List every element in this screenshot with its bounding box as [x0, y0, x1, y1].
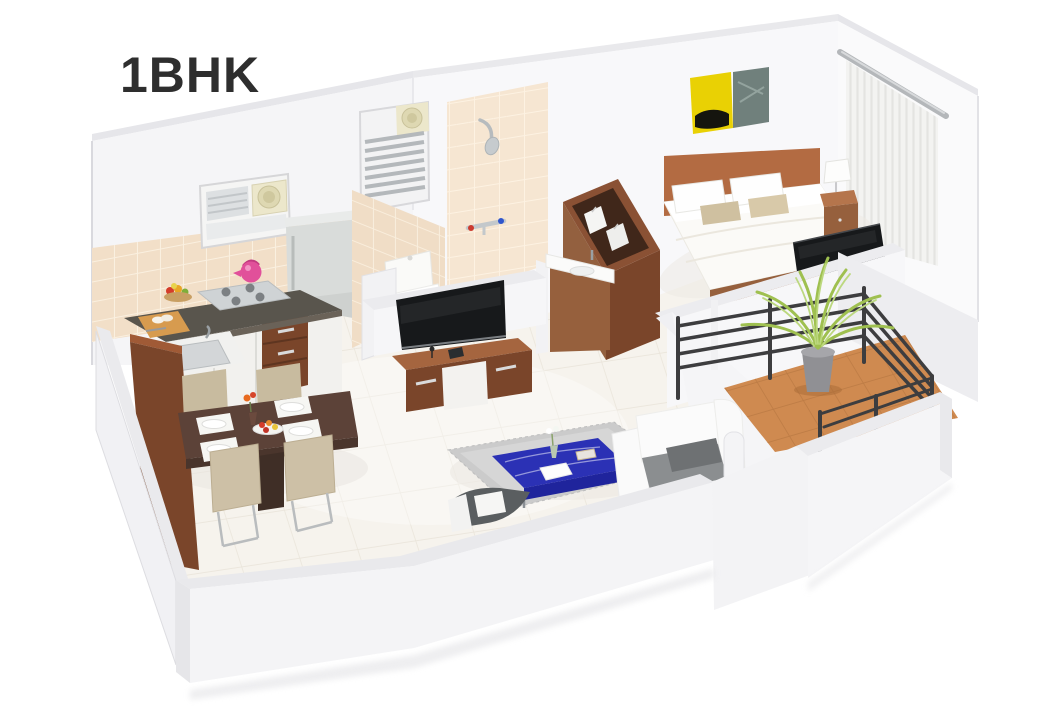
front-wall-left-cap: [176, 580, 190, 683]
bowl: [164, 292, 192, 302]
flower: [250, 392, 256, 398]
wall-art: [690, 67, 769, 134]
table-pedestal: [258, 452, 284, 511]
dining-chair: [284, 435, 335, 501]
flush-button: [408, 256, 413, 261]
white-flower: [553, 426, 559, 432]
fruit: [263, 427, 269, 433]
tv-unit-middle: [442, 361, 488, 410]
shower-tile-grid: [447, 82, 548, 300]
nightstand-knob: [838, 218, 841, 221]
flower-stems: [552, 434, 553, 446]
plate: [202, 420, 226, 429]
lamp-shade-icon: [824, 159, 851, 183]
flower-stem: [250, 402, 251, 412]
cold-tap-icon: [498, 218, 504, 224]
burner: [232, 297, 241, 306]
plate: [289, 427, 313, 436]
fruit-yellow: [171, 283, 177, 289]
burner: [256, 293, 265, 302]
burner: [246, 284, 255, 293]
flower: [244, 395, 251, 402]
art-teal-panel: [733, 67, 769, 128]
fruit: [272, 424, 278, 430]
bread-slice: [161, 315, 173, 322]
fruit: [259, 422, 265, 428]
kettle-body: [241, 262, 262, 283]
apartment-3d-render: 1BHK: [0, 0, 1038, 720]
wash-basin: [570, 267, 594, 276]
vent-fan-inner: [407, 113, 417, 123]
floor-plan-screenshot: 1BHK: [0, 0, 1038, 720]
white-flower: [546, 428, 552, 434]
kitchen-window: [200, 174, 290, 248]
balcony-wall-cap: [940, 392, 952, 478]
burner: [222, 288, 231, 297]
dining-chair: [210, 444, 261, 512]
plate: [280, 403, 304, 412]
decor-figurine: [430, 347, 435, 352]
page-title: 1BHK: [120, 47, 260, 103]
plant-pot: [802, 352, 834, 392]
hot-tap-icon: [468, 225, 474, 231]
bathroom-vent: [360, 102, 429, 212]
exhaust-fan-inner: [263, 191, 275, 203]
shower-wall: [447, 82, 548, 300]
fruit: [266, 420, 272, 426]
kettle-highlight: [245, 265, 251, 271]
